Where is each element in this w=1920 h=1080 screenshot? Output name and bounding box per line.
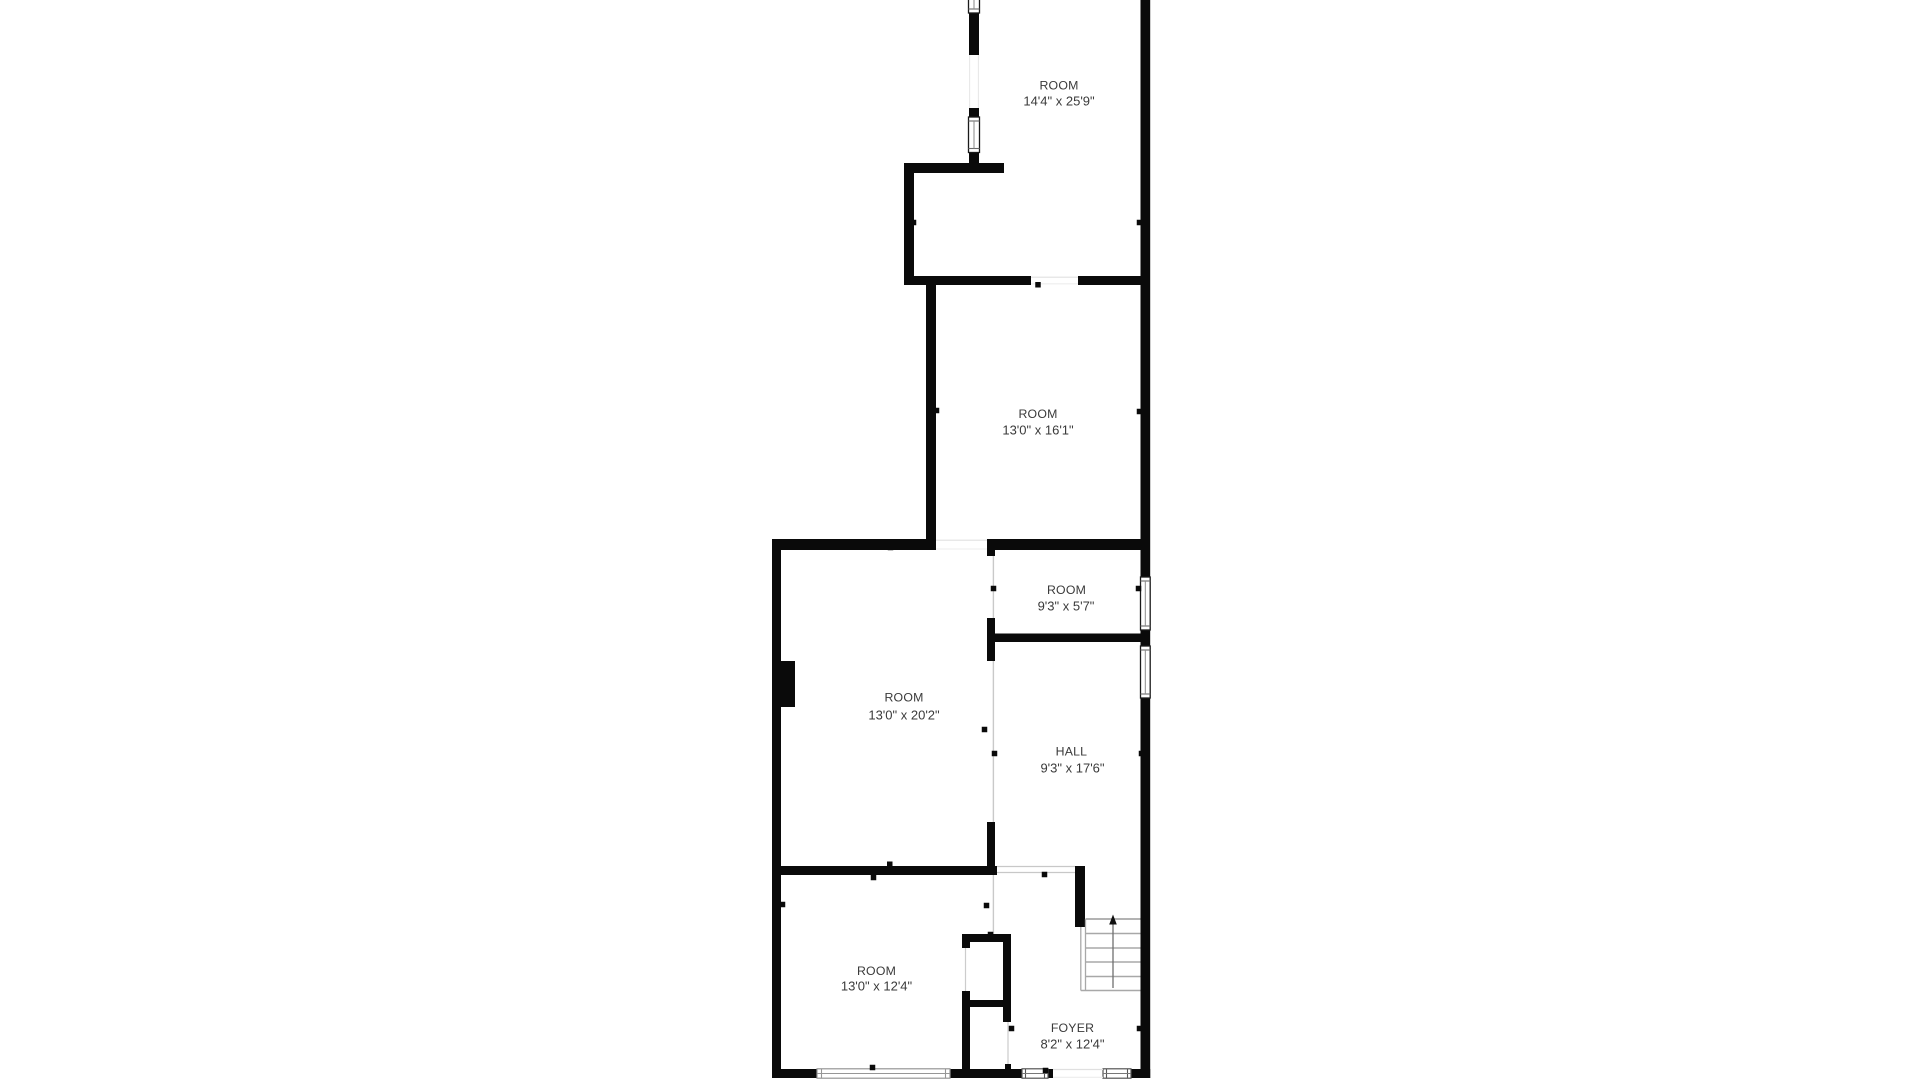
svg-text:HALL: HALL [1056,745,1088,759]
svg-text:ROOM: ROOM [1018,407,1057,421]
svg-text:ROOM: ROOM [1047,583,1086,597]
svg-text:9'3" x 17'6": 9'3" x 17'6" [1040,761,1104,776]
svg-text:14'4" x 25'9": 14'4" x 25'9" [1023,94,1095,109]
svg-text:ROOM: ROOM [884,691,923,705]
svg-text:13'0" x 12'4": 13'0" x 12'4" [841,979,913,994]
svg-text:9'3" x 5'7": 9'3" x 5'7" [1038,599,1095,614]
svg-text:ROOM: ROOM [857,964,896,978]
svg-text:ROOM: ROOM [1039,79,1078,93]
svg-text:FOYER: FOYER [1051,1021,1094,1035]
svg-text:13'0" x 20'2": 13'0" x 20'2" [868,708,940,723]
svg-text:13'0" x 16'1": 13'0" x 16'1" [1002,423,1074,438]
svg-text:8'2" x 12'4": 8'2" x 12'4" [1040,1037,1104,1052]
